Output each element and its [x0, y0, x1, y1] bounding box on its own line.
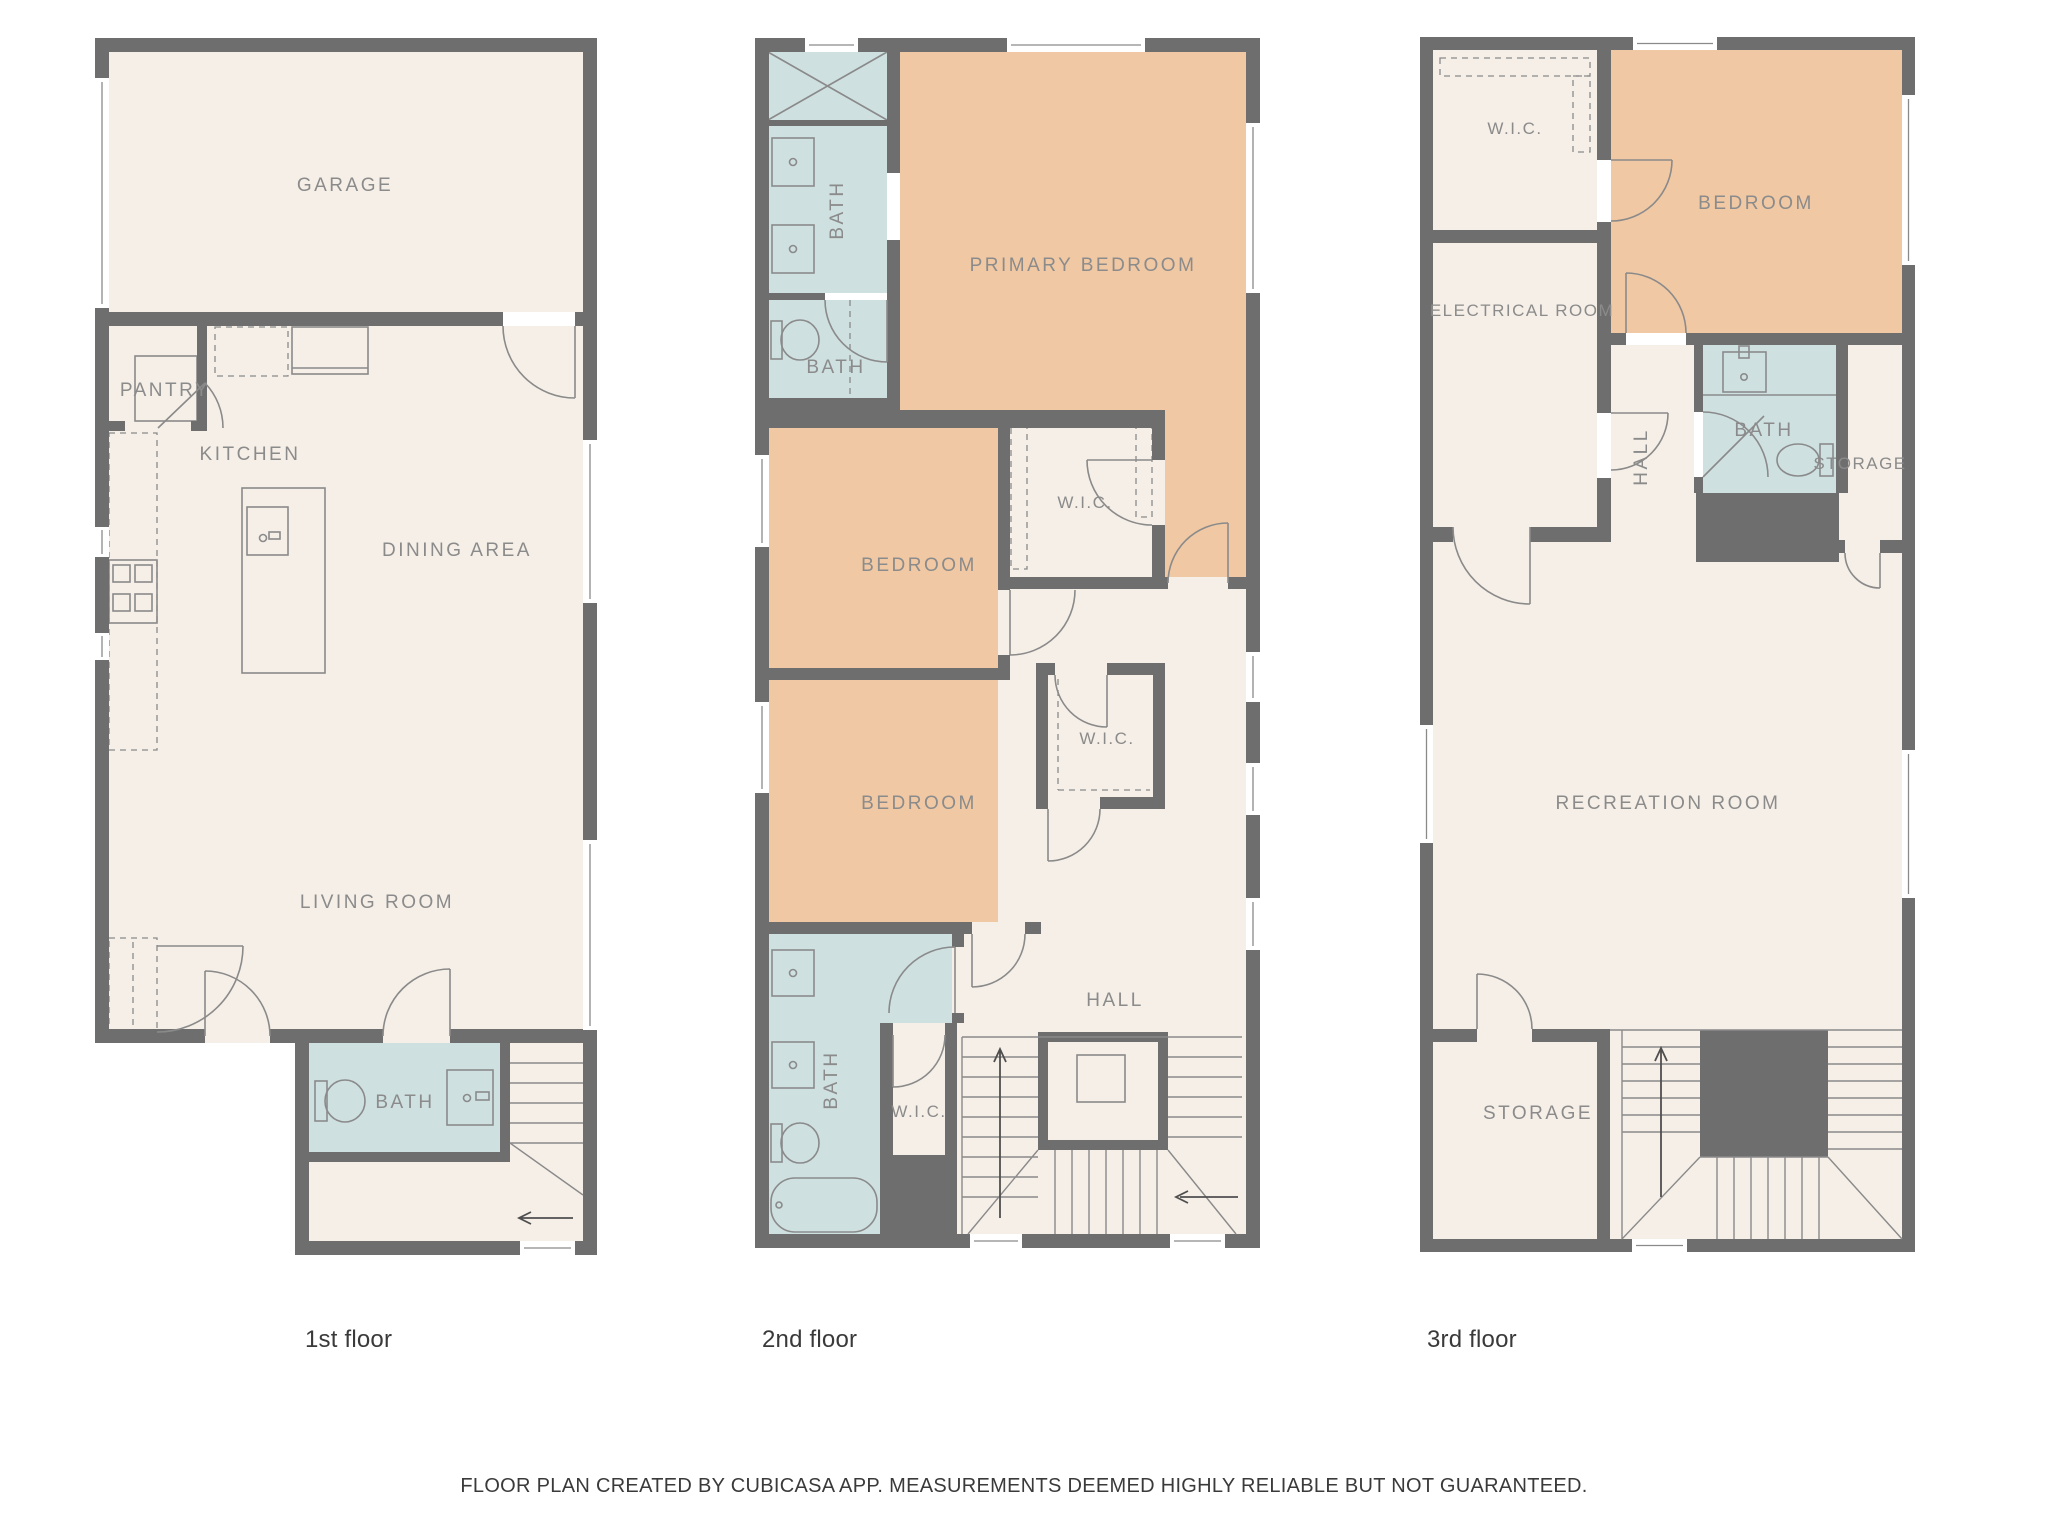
- floor-label-1st: 1st floor: [305, 1326, 392, 1353]
- room-label-bath-upper: BATH: [827, 180, 848, 239]
- door-opening: [1597, 160, 1611, 222]
- room-label-bedroom-mid: BEDROOM: [861, 555, 977, 576]
- room-label-bath-lower: BATH: [821, 1050, 842, 1109]
- void-space: [1696, 493, 1839, 562]
- floor-plan-2nd-floor: BATH BATH PRIMARY BEDROOM BEDROOM W.I.C.…: [755, 38, 1260, 1248]
- room-label-hall: HALL: [1631, 428, 1652, 486]
- room-bedroom: [1611, 50, 1902, 333]
- room-label-garage: GARAGE: [297, 175, 393, 196]
- door-opening: [1626, 333, 1686, 345]
- room-bath-mid: [768, 300, 887, 398]
- room-label-wic-primary: W.I.C.: [1057, 493, 1112, 512]
- room-label-hall: HALL: [1086, 990, 1144, 1011]
- room-label-bedroom-lower: BEDROOM: [861, 793, 977, 814]
- room-label-electrical-room: ELECTRICAL ROOM: [1430, 301, 1614, 320]
- room-label-storage-upper: STORAGE: [1813, 454, 1906, 473]
- floor-plan-3rd-floor: W.I.C. BEDROOM ELECTRICAL ROOM HALL BATH…: [1420, 37, 1915, 1252]
- room-label-wic-lower: W.I.C.: [891, 1102, 946, 1121]
- room-label-bath-mid: BATH: [806, 357, 865, 378]
- stairwell-void: [1700, 1030, 1828, 1157]
- door-opening: [1597, 413, 1611, 478]
- room-label-wic: W.I.C.: [1487, 119, 1542, 138]
- door-opening: [503, 312, 575, 326]
- footer-disclaimer: FLOOR PLAN CREATED BY CUBICASA APP. MEAS…: [460, 1475, 1587, 1497]
- room-label-storage-lower: STORAGE: [1483, 1103, 1593, 1124]
- door-opening: [1694, 412, 1703, 477]
- floor-label-2nd: 2nd floor: [762, 1326, 857, 1353]
- room-label-kitchen: KITCHEN: [200, 444, 301, 465]
- room-label-bath: BATH: [375, 1092, 434, 1113]
- room-label-living-room: LIVING ROOM: [300, 892, 454, 913]
- stairwell-core: [1048, 1042, 1158, 1140]
- room-label-bath: BATH: [1734, 420, 1793, 441]
- floor-plan-canvas: GARAGE PANTRY KITCHEN DINING AREA LIVING…: [0, 0, 2048, 1536]
- door-opening: [825, 293, 887, 300]
- floor-label-3rd: 3rd floor: [1427, 1326, 1517, 1353]
- room-label-dining-area: DINING AREA: [382, 540, 532, 561]
- room-label-wic-mid: W.I.C.: [1079, 729, 1134, 748]
- door-opening: [887, 173, 900, 240]
- void-space: [893, 1167, 945, 1234]
- room-label-primary-bedroom: PRIMARY BEDROOM: [970, 255, 1197, 276]
- room-label-pantry: PANTRY: [120, 380, 210, 401]
- room-label-bedroom: BEDROOM: [1698, 193, 1814, 214]
- room-label-recreation-room: RECREATION ROOM: [1555, 793, 1780, 814]
- floor-plan-1st-floor: GARAGE PANTRY KITCHEN DINING AREA LIVING…: [95, 38, 597, 1255]
- room-bedroom-mid: [768, 428, 998, 668]
